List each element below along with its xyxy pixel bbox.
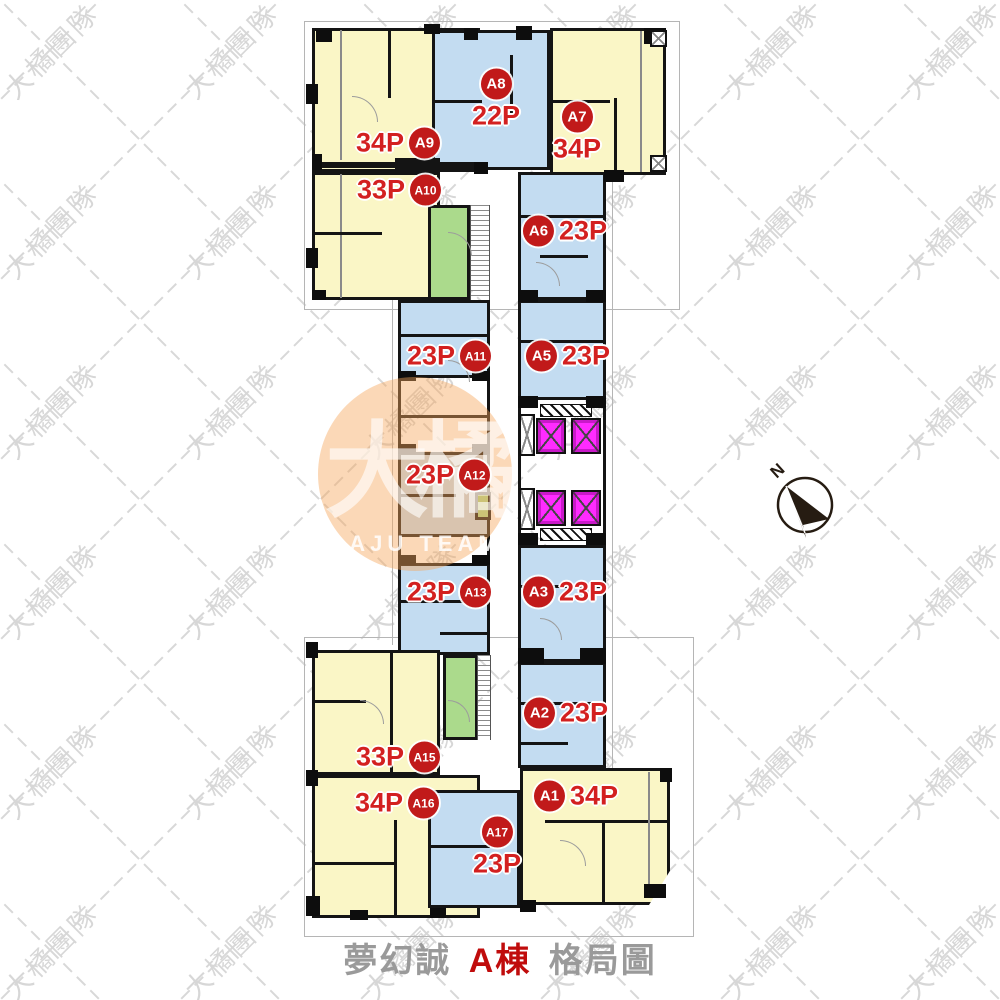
wall-segment [602,823,605,903]
unit-label-a16: 34P A16 [355,788,439,819]
column [464,28,478,40]
elevator-shaft-1 [536,418,566,454]
wall-chunk [586,396,606,408]
plan-title: 夢幻誠 A棟 格局圖 [0,933,1000,982]
unit-badge-a10: A10 [410,175,441,206]
unit-badge-a15: A15 [409,742,440,773]
column [644,884,666,898]
title-building: A棟 [469,942,532,980]
wall-segment [394,820,397,918]
column [312,290,326,300]
duct-shaft-bottom [519,488,535,530]
unit-label-a9: 34P A9 [356,128,440,159]
unit-size-a10: 33P [357,175,405,206]
unit-size-a17: 23P [473,849,521,880]
unit-badge-a11: A11 [460,341,491,372]
column [424,24,440,34]
wall-segment [340,30,342,160]
column [474,162,488,174]
wall-segment [312,232,382,235]
unit-badge-a8: A8 [480,69,511,100]
floor-plan-page: 大橘團隊大橘團隊大橘團隊大橘團隊大橘團隊大橘團隊大橘團隊大橘團隊大橘團隊大橘團隊… [0,0,1000,1000]
north-label: N [767,460,789,482]
column [316,30,332,42]
unit-badge-a16: A16 [408,788,439,819]
left-strip-outline [392,300,393,645]
column [306,248,318,268]
unit-badge-a6: A6 [523,216,554,247]
wall-chunk [398,444,416,454]
stairs-bottom-treads [477,655,491,740]
unit-size-a13: 23P [407,577,455,608]
column [306,642,318,658]
unit-size-a8: 22P [472,101,520,132]
unit-label-a6: A6 23P [523,216,607,247]
column [660,768,672,782]
unit-label-a1: A1 34P [534,781,618,812]
column [604,170,624,182]
unit-badge-a1: A1 [534,781,565,812]
column [306,770,318,786]
column-xbox [650,155,667,172]
north-arrow: N [765,450,855,550]
balcony-line [340,174,342,298]
unit-size-a6: 23P [559,216,607,247]
right-strip-outline [612,170,613,770]
wall-segment [398,494,456,497]
wall-chunk [472,555,490,565]
unit-size-a9: 34P [356,128,404,159]
unit-label-a15: 33P A15 [356,742,440,773]
wall-segment [398,334,490,337]
wall-chunk [472,444,490,454]
unit-badge-a2: A2 [524,698,555,729]
wall-chunk [586,533,606,545]
column [430,908,446,918]
unit-size-a11: 23P [407,341,455,372]
unit-badge-a12: A12 [459,460,490,491]
column [516,26,532,40]
unit-label-a13: 23P A13 [407,577,491,608]
unit-badge-a13: A13 [460,577,491,608]
wall-chunk [518,290,538,302]
wall-chunk [580,648,606,664]
elevator-shaft-4 [571,490,601,526]
column [306,84,318,104]
utility-green-room [475,492,491,520]
wall-segment [398,415,490,418]
unit-size-a16: 34P [355,788,403,819]
unit-size-a12: 23P [406,460,454,491]
hatch-strip-top [540,404,592,417]
wall-segment [395,158,440,172]
unit-label-a3: A3 23P [523,577,607,608]
elevator-shaft-2 [571,418,601,454]
wall-chunk [518,533,538,545]
column-xbox [650,30,667,47]
wall-chunk [398,371,416,381]
hatch-strip-bottom [540,528,592,541]
wall-chunk [586,290,606,302]
unit-label-a12: 23P A12 [406,460,490,491]
unit-label-a10: 33P A10 [357,175,441,206]
column [350,910,368,920]
duct-shaft-top [519,414,535,456]
title-project: 夢幻誠 [343,942,451,980]
unit-size-a5: 23P [562,341,610,372]
wall-segment [312,862,394,865]
stairs-bottom [443,655,478,740]
title-suffix: 格局圖 [549,942,657,980]
wall-segment [518,742,568,745]
unit-label-a7: A7 34P [553,102,601,165]
wall-chunk [518,648,544,664]
stairs-top-treads [470,205,490,300]
unit-label-a17: A17 23P [473,817,521,880]
unit-badge-a5: A5 [526,341,557,372]
elevator-shaft-3 [536,490,566,526]
wall-segment [388,28,391,98]
unit-badge-a9: A9 [409,128,440,159]
unit-size-a15: 33P [356,742,404,773]
wall-chunk [472,371,490,381]
unit-label-a8: A8 22P [472,69,520,132]
unit-size-a3: 23P [559,577,607,608]
unit-label-a5: A5 23P [526,341,610,372]
column [306,896,320,916]
wall-chunk [518,396,538,408]
wall-segment [614,98,617,172]
balcony-line [648,772,650,892]
unit-badge-a7: A7 [561,102,592,133]
unit-size-a2: 23P [560,698,608,729]
unit-size-a1: 34P [570,781,618,812]
balcony-line [640,31,642,172]
unit-badge-a3: A3 [523,577,554,608]
unit-size-a7: 34P [553,134,601,165]
column [312,154,322,170]
wall-segment [540,255,588,258]
unit-label-a2: A2 23P [524,698,608,729]
wall-chunk [398,555,416,565]
unit-badge-a17: A17 [481,817,512,848]
wall-segment [312,700,366,703]
column [520,900,536,912]
unit-label-a11: 23P A11 [407,341,491,372]
wall-segment [440,632,490,635]
